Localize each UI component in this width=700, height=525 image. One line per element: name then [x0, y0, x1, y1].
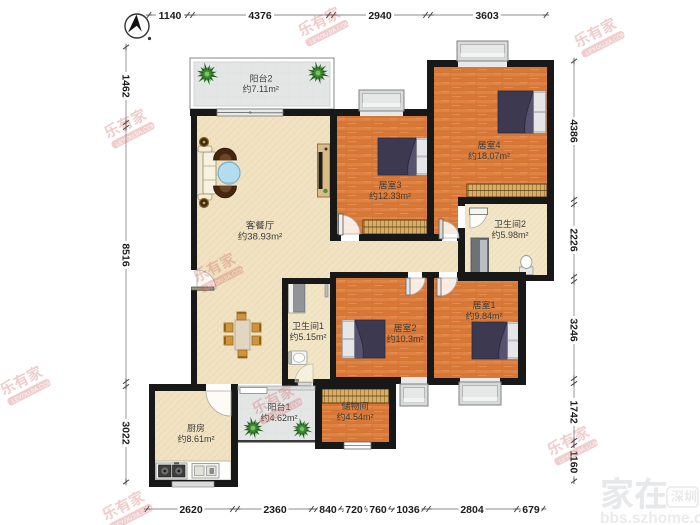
svg-text:1140: 1140	[159, 10, 182, 22]
svg-text:8516: 8516	[120, 243, 132, 267]
svg-text:840: 840	[319, 504, 337, 516]
svg-text:2: 2	[521, 219, 526, 229]
svg-text:4386: 4386	[568, 119, 580, 143]
svg-text:1462: 1462	[120, 74, 132, 98]
svg-text:760: 760	[369, 504, 387, 516]
svg-text:2: 2	[268, 74, 273, 84]
svg-text:7.11m²: 7.11m²	[252, 84, 279, 94]
svg-text:bbs.szhome.com: bbs.szhome.com	[600, 510, 700, 525]
svg-text:2804: 2804	[460, 504, 484, 516]
svg-text:2940: 2940	[368, 10, 392, 22]
svg-text:3246: 3246	[568, 318, 580, 342]
svg-text:3603: 3603	[475, 10, 499, 22]
svg-text:2620: 2620	[179, 504, 203, 516]
svg-text:3022: 3022	[120, 421, 132, 445]
svg-text:12.33m²: 12.33m²	[378, 191, 411, 201]
svg-text:5.15m²: 5.15m²	[299, 332, 327, 342]
svg-text:2: 2	[412, 323, 417, 333]
svg-text:10.3m²: 10.3m²	[396, 334, 424, 344]
svg-text:2226: 2226	[568, 228, 580, 252]
svg-text:720: 720	[345, 504, 363, 516]
svg-text:18.07m²: 18.07m²	[477, 151, 510, 161]
svg-text:1: 1	[491, 300, 496, 310]
svg-text:1036: 1036	[396, 504, 420, 516]
svg-text:5.98m²: 5.98m²	[501, 230, 529, 240]
svg-text:1742: 1742	[568, 400, 580, 424]
svg-text:4.54m²: 4.54m²	[346, 412, 374, 422]
svg-text:9.84m²: 9.84m²	[475, 311, 503, 321]
svg-text:38.93m²: 38.93m²	[247, 232, 282, 243]
svg-text:3: 3	[397, 180, 402, 190]
svg-text:8.61m²: 8.61m²	[187, 434, 215, 444]
svg-text:2360: 2360	[263, 504, 287, 516]
svg-text:4376: 4376	[248, 10, 272, 22]
svg-text:1: 1	[319, 321, 324, 331]
svg-text:679: 679	[522, 504, 540, 516]
svg-text:4: 4	[496, 140, 501, 150]
